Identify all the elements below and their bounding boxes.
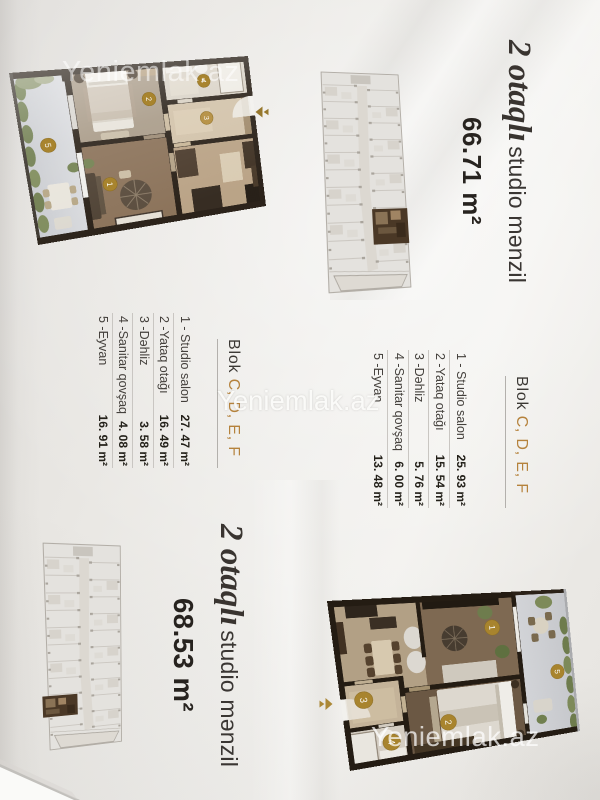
svg-text:1: 1 xyxy=(487,625,497,631)
svg-text:2: 2 xyxy=(144,97,153,102)
